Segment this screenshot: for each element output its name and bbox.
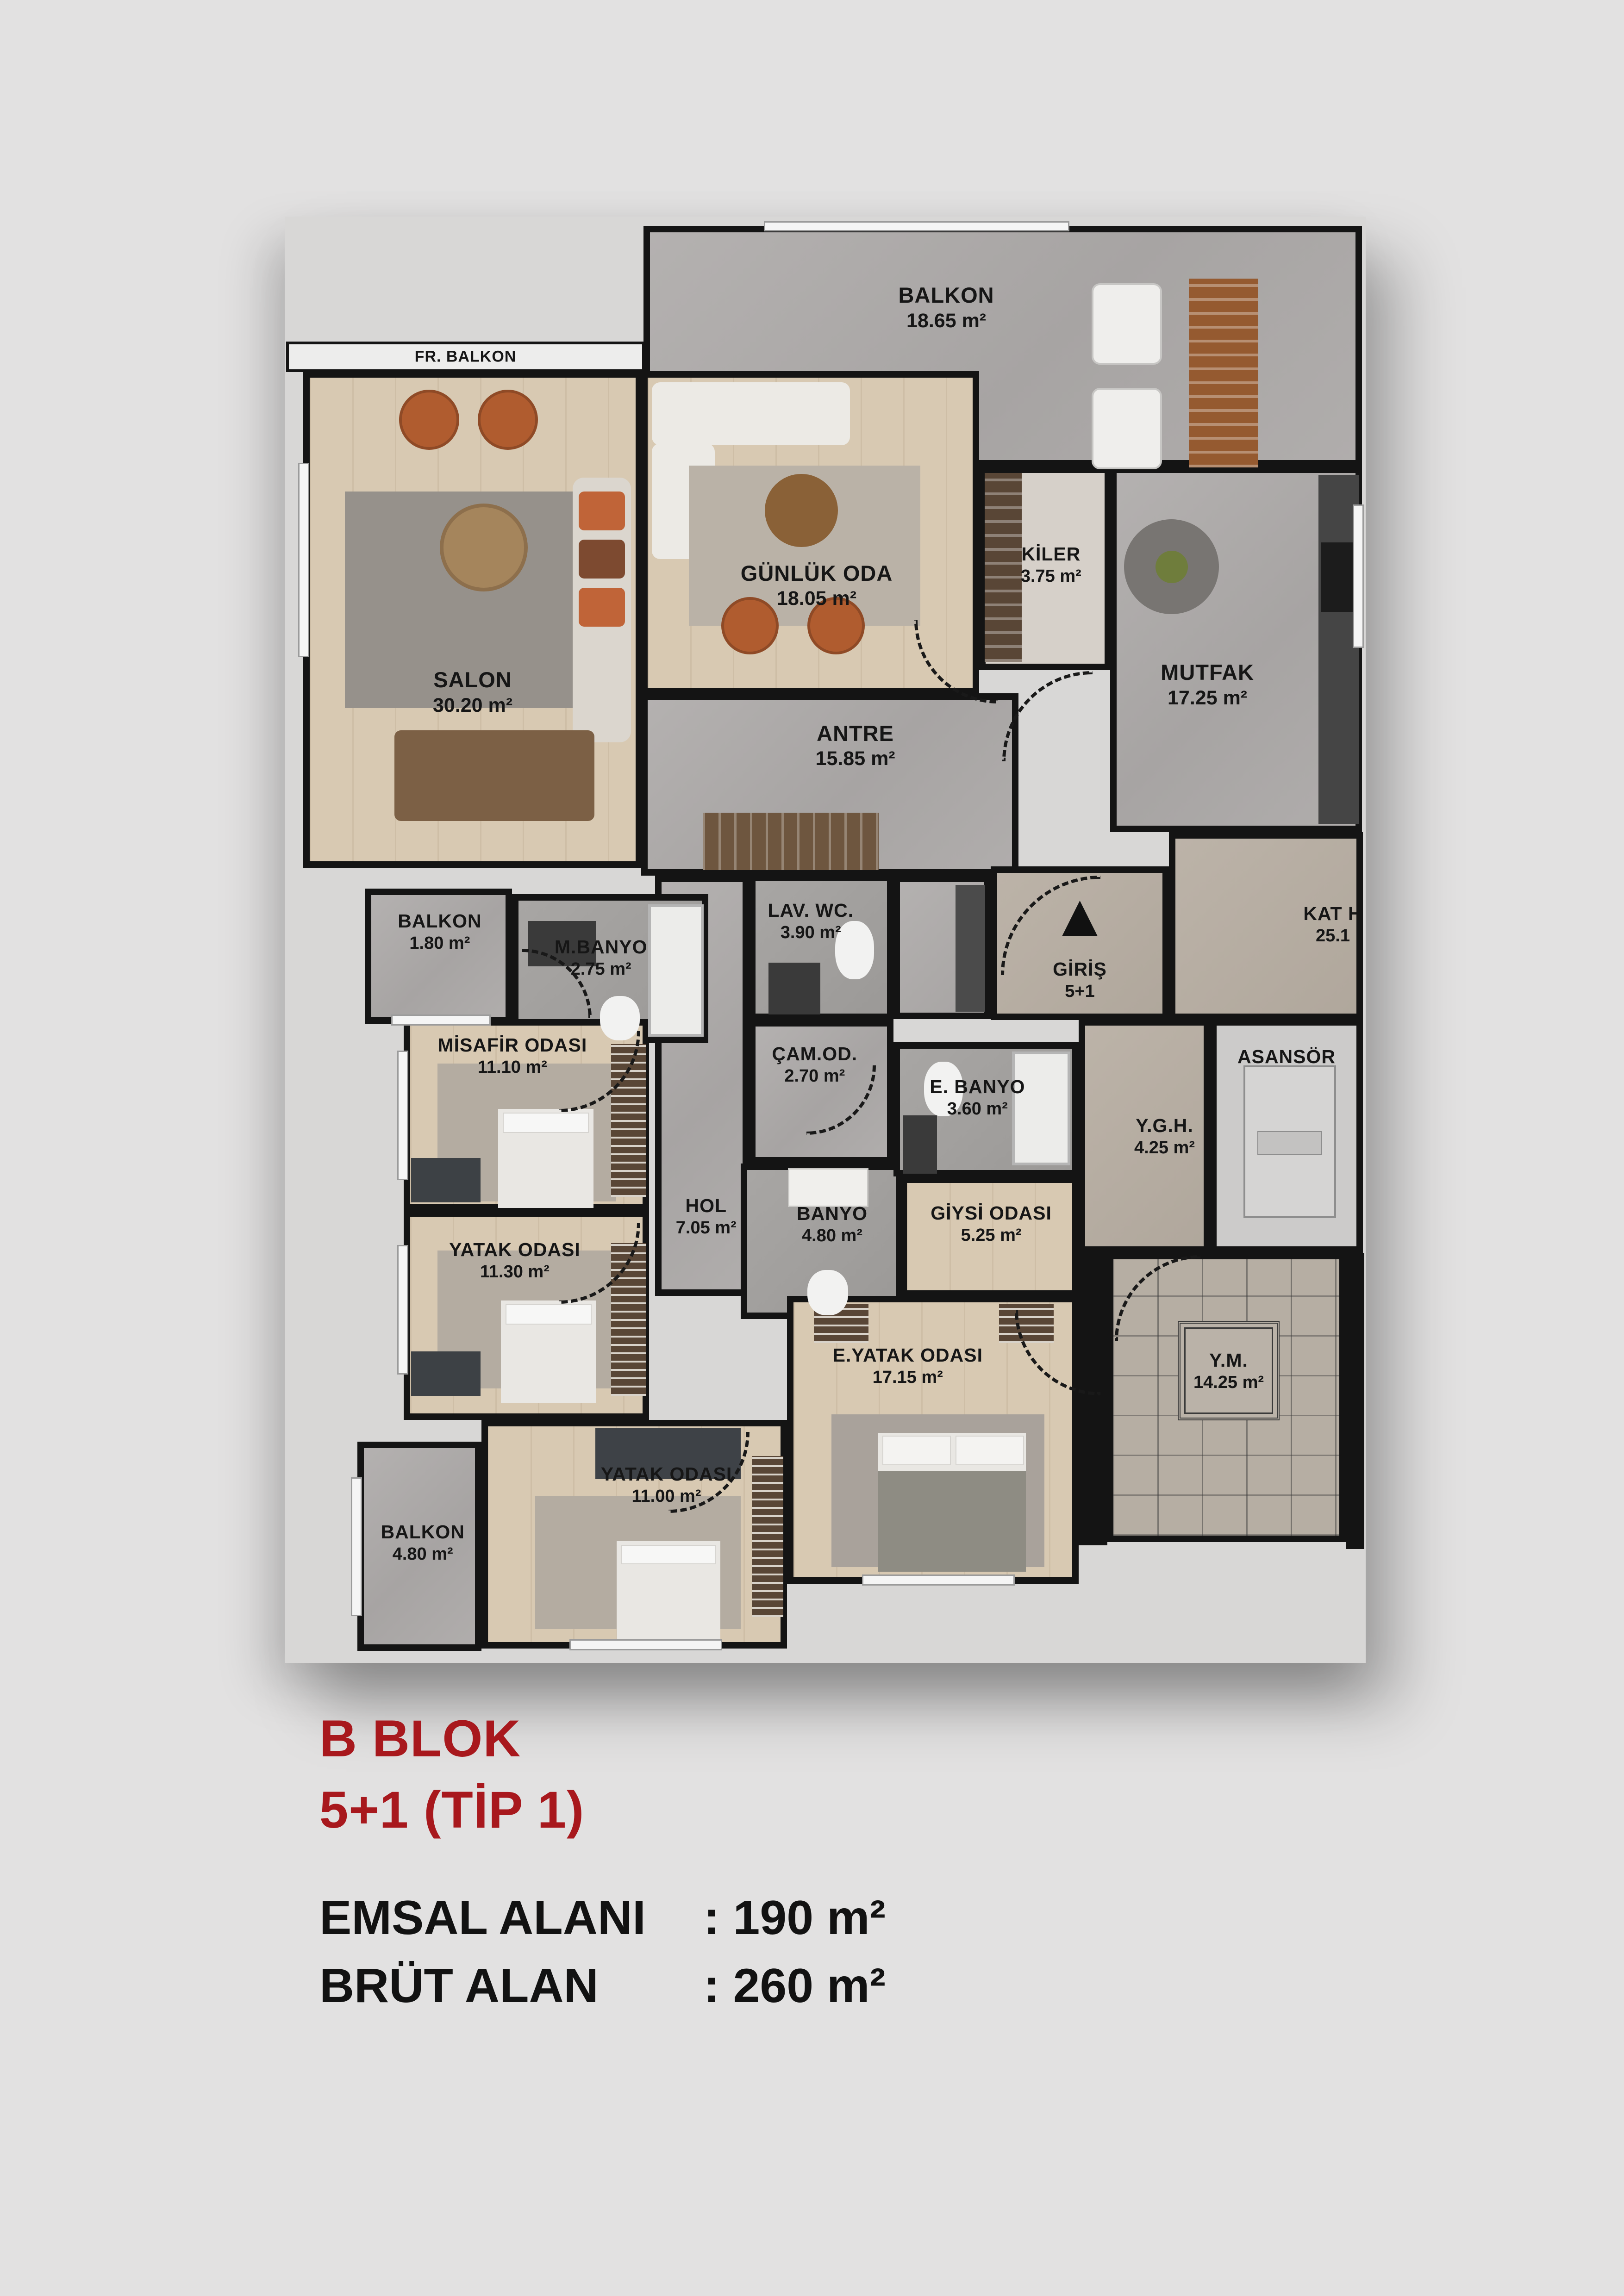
room-name: SALON [433, 666, 512, 693]
room-area: 18.05 m² [741, 586, 893, 610]
room-name: Y.G.H. [1134, 1114, 1195, 1137]
room-kat-holu: KAT H25.1 [1169, 832, 1363, 1020]
block-name: B BLOK [319, 1709, 521, 1768]
gunluk-sofa [652, 382, 850, 445]
room-label: E.YATAK ODASI17.15 m² [833, 1343, 983, 1388]
room-name: KİLER [1021, 542, 1081, 566]
room-area: 17.25 m² [1161, 686, 1254, 710]
bed-pillow [621, 1545, 716, 1564]
salon-round-table [440, 504, 528, 591]
room-name: GÜNLÜK ODA [741, 560, 893, 586]
room-label: ASANSÖR [1237, 1045, 1336, 1068]
room-label: BALKON4.80 m² [381, 1520, 465, 1564]
spec-label-emsal: EMSAL ALANI [319, 1891, 646, 1946]
room-label: ÇAM.OD.2.70 m² [772, 1042, 857, 1087]
room-name: BANYO [797, 1202, 868, 1225]
room-label: MİSAFİR ODASI11.10 m² [437, 1033, 587, 1078]
sofa-pillow [579, 492, 625, 530]
room-area: 11.00 m² [601, 1486, 732, 1507]
room-label: BANYO4.80 m² [797, 1202, 868, 1246]
bed-pillow [956, 1436, 1024, 1465]
room-area: 3.75 m² [1021, 566, 1081, 587]
room-label: Y.G.H.4.25 m² [1134, 1114, 1195, 1158]
room-name: M.BANYO [555, 935, 648, 958]
room-balkon-180: BALKON1.80 m² [365, 889, 512, 1024]
unit-type: 5+1 (TİP 1) [319, 1780, 584, 1840]
window [764, 221, 1069, 231]
wardrobe [752, 1456, 783, 1617]
room-label: ANTRE15.85 m² [816, 720, 895, 771]
room-name: BALKON [899, 282, 994, 308]
room-name: E. BANYO [930, 1075, 1025, 1098]
room-area: 17.15 m² [833, 1366, 983, 1388]
room-name: GİRİŞ [1053, 958, 1107, 981]
window [351, 1477, 362, 1616]
bathtub [648, 904, 704, 1037]
room-area: 3.60 m² [930, 1098, 1025, 1120]
room-name: YATAK ODASI [449, 1238, 581, 1261]
room-label: HOL7.05 m² [676, 1194, 737, 1238]
coffee-table [765, 474, 838, 547]
balcony-table [1189, 279, 1258, 467]
room-fr-balkon: FR. BALKON [286, 342, 645, 372]
room-name: KAT H [1303, 902, 1362, 925]
floor-plan-page: { "plan": { "rooms": [ {"name": "BALKON"… [0, 0, 1624, 2296]
bed-pillow [882, 1436, 951, 1465]
room-area: 25.1 [1303, 925, 1362, 946]
bathroom-sink [903, 1115, 937, 1174]
room-label: GİYSİ ODASI5.25 m² [931, 1201, 1052, 1246]
bed-pillow [503, 1113, 589, 1133]
window [569, 1639, 722, 1650]
room-area: 14.25 m² [1193, 1371, 1264, 1393]
room-label: FR. BALKON [415, 347, 517, 366]
room-area: 4.80 m² [797, 1225, 868, 1246]
room-name: YATAK ODASI [601, 1462, 732, 1486]
desk [411, 1351, 481, 1396]
shoe-cabinet [956, 885, 985, 1012]
desk [411, 1158, 481, 1202]
wall-segment [1079, 1253, 1107, 1545]
room-area: 1.80 m² [398, 933, 481, 954]
wall-segment [1346, 1253, 1364, 1549]
room-giysi-odasi: GİYSİ ODASI5.25 m² [900, 1176, 1079, 1297]
bathroom-vanity [788, 1168, 868, 1207]
room-area: 15.85 m² [816, 747, 895, 771]
room-label: LAV. WC.3.90 m² [768, 899, 854, 943]
room-name: ÇAM.OD. [772, 1042, 857, 1065]
room-area: 4.25 m² [1134, 1137, 1195, 1158]
entrance-arrow-icon: ▲ [1050, 885, 1110, 945]
room-label: KAT H25.1 [1303, 902, 1362, 946]
room-label: GİRİŞ5+1 [1053, 958, 1107, 1002]
room-area: 2.75 m² [555, 958, 648, 980]
room-label: SALON30.20 m² [433, 666, 512, 717]
room-area: 5.25 m² [931, 1225, 1052, 1246]
sofa-pillow [579, 588, 625, 627]
room-name: MİSAFİR ODASI [437, 1033, 587, 1057]
room-name: LAV. WC. [768, 899, 854, 922]
spec-value-emsal: : 190 m² [704, 1891, 886, 1946]
room-area: 30.20 m² [433, 693, 512, 717]
window [862, 1574, 1015, 1586]
room-ygh: Y.G.H.4.25 m² [1079, 1019, 1210, 1253]
room-area: 7.05 m² [676, 1217, 737, 1238]
room-name: BALKON [398, 909, 481, 933]
toilet [807, 1270, 848, 1315]
bed-pillow [506, 1304, 592, 1325]
room-area: 2.70 m² [772, 1065, 857, 1087]
elevator-cab [1257, 1131, 1322, 1155]
room-name: Y.M. [1193, 1348, 1264, 1371]
room-label: BALKON18.65 m² [899, 282, 994, 333]
window [397, 1051, 408, 1180]
room-balkon-480: BALKON4.80 m² [357, 1442, 481, 1651]
window [1353, 504, 1364, 648]
room-area: 18.65 m² [899, 309, 994, 333]
window [298, 463, 309, 657]
room-label: MUTFAK17.25 m² [1161, 659, 1254, 710]
room-area: 5+1 [1053, 981, 1107, 1002]
room-area: 3.90 m² [768, 922, 854, 943]
room-label: YATAK ODASI11.30 m² [449, 1238, 581, 1282]
spec-label-brut: BRÜT ALAN [319, 1959, 599, 2014]
lounge-chair [1092, 283, 1162, 365]
room-name: E.YATAK ODASI [833, 1343, 983, 1366]
plant [1156, 551, 1188, 583]
room-name: FR. BALKON [415, 347, 517, 366]
bed-blanket [878, 1471, 1026, 1572]
salon-armchair [478, 390, 538, 450]
cooktop [1321, 542, 1355, 612]
salon-armchair [399, 390, 459, 450]
room-label: BALKON1.80 m² [398, 909, 481, 954]
bathroom-sink [768, 963, 820, 1014]
room-name: BALKON [381, 1520, 465, 1543]
room-name: GİYSİ ODASI [931, 1201, 1052, 1225]
window [391, 1014, 491, 1026]
room-name: HOL [676, 1194, 737, 1217]
room-area: 11.30 m² [449, 1261, 581, 1282]
room-name: ASANSÖR [1237, 1045, 1336, 1068]
dining-table [394, 730, 594, 821]
room-label: GÜNLÜK ODA18.05 m² [741, 560, 893, 611]
antre-wardrobe [703, 813, 879, 870]
room-label: KİLER3.75 m² [1021, 542, 1081, 587]
spec-value-brut: : 260 m² [704, 1959, 886, 2014]
room-name: ANTRE [816, 720, 895, 747]
window [397, 1245, 408, 1375]
room-area: 11.10 m² [437, 1057, 587, 1078]
room-area: 4.80 m² [381, 1543, 465, 1564]
lounge-chair [1092, 388, 1162, 469]
room-label: M.BANYO2.75 m² [555, 935, 648, 980]
room-name: MUTFAK [1161, 659, 1254, 685]
room-label: YATAK ODASI11.00 m² [601, 1462, 732, 1507]
sofa-pillow [579, 540, 625, 579]
room-label: Y.M.14.25 m² [1193, 1348, 1264, 1393]
room-label: E. BANYO3.60 m² [930, 1075, 1025, 1120]
